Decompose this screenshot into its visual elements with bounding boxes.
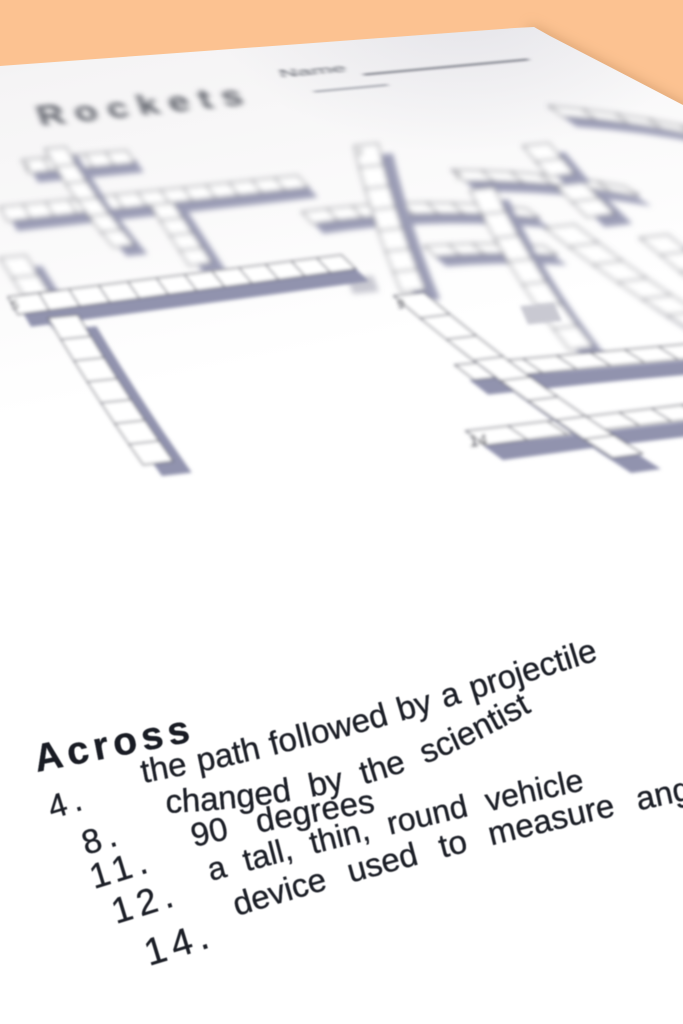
svg-text:4.: 4. <box>43 779 92 826</box>
svg-text:14.: 14. <box>139 914 219 975</box>
